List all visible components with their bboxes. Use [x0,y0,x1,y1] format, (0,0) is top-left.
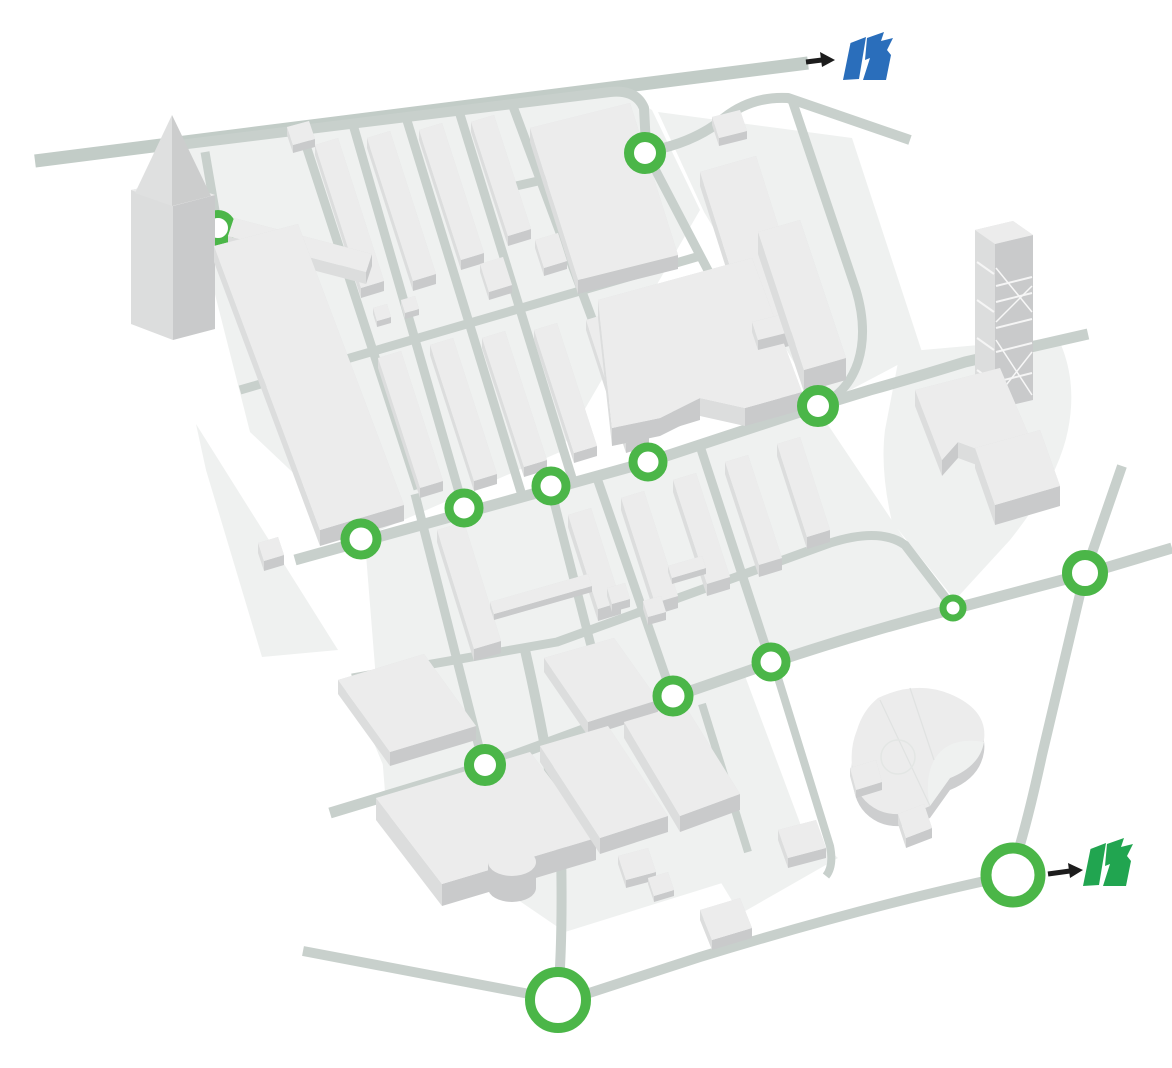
roundabout-marker[interactable] [629,137,661,169]
exit-southeast[interactable] [1048,838,1133,886]
roundabout-marker[interactable] [943,598,963,618]
motorway-exit-icon [843,37,866,80]
building-face [135,115,172,206]
roundabout-marker[interactable] [345,523,377,555]
exit-arrow-icon [806,60,822,62]
roundabout-marker[interactable] [469,749,501,781]
roundabout-marker[interactable] [802,390,834,422]
exit-arrowhead-icon [1068,863,1083,878]
district-map-stage [0,0,1172,1068]
building-horseshoe-complex [852,688,985,826]
exit-arrow-icon [1048,871,1070,874]
roundabout-marker[interactable] [756,647,786,677]
building-silo [488,848,536,902]
exit-northeast[interactable] [806,32,893,80]
roundabout-marker[interactable] [986,848,1040,902]
roundabout-marker[interactable] [657,680,689,712]
roundabout-marker[interactable] [1067,555,1103,591]
roundabout-marker[interactable] [633,447,663,477]
diagonal-east [1016,466,1122,858]
motorway-exit-icon [1083,843,1106,886]
district-map [0,0,1172,1068]
building-side [173,195,215,340]
roundabout-marker[interactable] [536,471,566,501]
motorway-exit-icon [1103,838,1133,886]
roundabout-marker[interactable] [449,493,479,523]
roundabout-marker[interactable] [530,972,586,1028]
building-side [131,190,173,340]
motorway-exit-icon [863,32,893,80]
building-roof [488,848,536,876]
exit-arrowhead-icon [820,52,835,67]
